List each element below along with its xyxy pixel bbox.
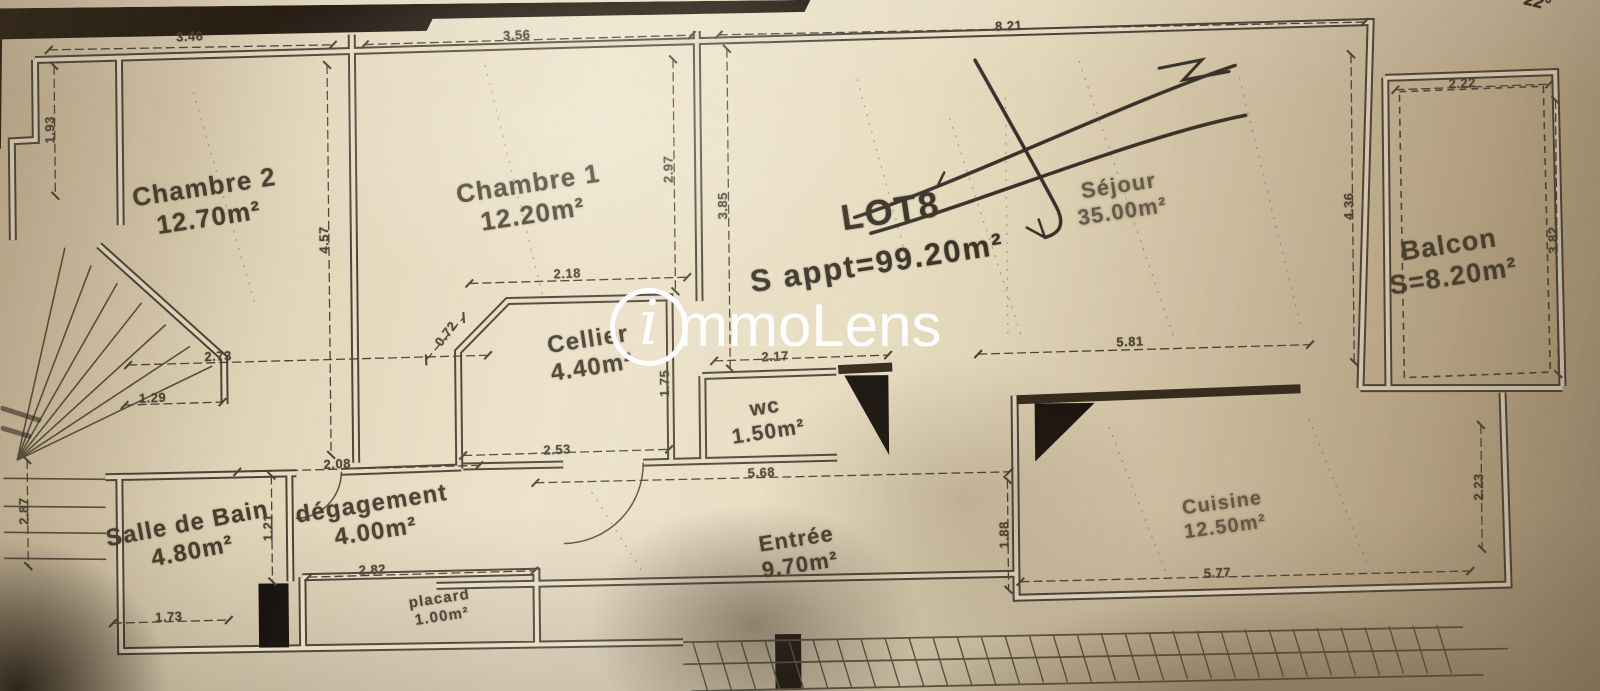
dim-label: 2.87 — [16, 497, 31, 524]
watermark-initial: i — [639, 292, 659, 354]
floor-plan-photo: Chambre 2 12.70m² Chambre 1 12.20m² Cell… — [0, 0, 1600, 691]
dim-label: 5.77 — [1203, 565, 1231, 581]
dim-label: 1.21 — [260, 514, 275, 541]
dim-label: 2.82 — [358, 561, 386, 577]
dim-label: 3.82 — [1545, 226, 1560, 253]
dim-label: 2.73 — [204, 348, 232, 364]
dim-label: 2.53 — [543, 441, 571, 457]
dim-label: 1.88 — [996, 521, 1011, 548]
dim-label: 2.08 — [323, 456, 351, 472]
watermark: i mmoLens — [610, 288, 941, 366]
dim-label: 5.81 — [1116, 333, 1144, 349]
dim-label: 2.97 — [661, 156, 676, 183]
dim-label: 3.46 — [176, 28, 204, 44]
dim-label: 2.18 — [553, 265, 581, 281]
dim-label: 1.29 — [139, 390, 167, 406]
dim-label: 1.73 — [155, 609, 183, 625]
dim-label: 3.56 — [503, 27, 531, 43]
dim-label: 2.22 — [1448, 75, 1476, 91]
dim-label: 3.85 — [715, 192, 730, 219]
dim-label: 8.21 — [995, 18, 1023, 34]
watermark-logo-icon: i — [610, 288, 688, 366]
dim-label: 5.68 — [747, 464, 775, 480]
dim-label: 1.93 — [42, 116, 57, 143]
hatch-band — [683, 625, 1509, 691]
watermark-text: mmoLens — [678, 291, 941, 360]
dim-label: 2.23 — [1471, 473, 1486, 500]
pen-scribbles — [0, 57, 1249, 436]
dim-label: 1.75 — [657, 370, 672, 397]
dim-label: 4.36 — [1341, 193, 1356, 220]
dim-label: 4.57 — [316, 226, 331, 253]
